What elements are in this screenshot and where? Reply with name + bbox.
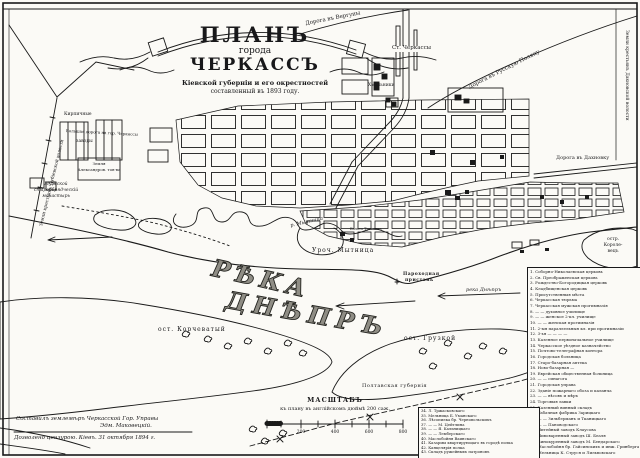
label-gruzkoy: ост. Грузкой xyxy=(404,336,456,342)
label-pristan-1: Пароходная xyxy=(403,273,440,278)
label-monastery-2: старообрядческій xyxy=(18,189,94,194)
scale-bar xyxy=(267,420,403,428)
map-subtitle-1: Кіевской губерніи и его окрестностей xyxy=(155,80,355,87)
scale-tick: 400 xyxy=(322,430,348,435)
map-title: ПЛАНЪ xyxy=(190,24,320,45)
label-pristan-2: пристань xyxy=(405,279,434,284)
map-title-city: ЧЕРКАССЪ xyxy=(180,57,330,74)
label-korolevets-1: остр. xyxy=(598,238,628,243)
map-page: ПЛАНЪ города ЧЕРКАССЪ Кіевской губерніи … xyxy=(0,0,640,458)
label-uroch-mytnitsa: Уроч. Мытница xyxy=(312,248,374,254)
label-monastery-3: монастырь xyxy=(28,195,84,200)
label-monastery-1: Мужской xyxy=(28,183,84,188)
legend-item: 33. Мельница К. Струся и Лильвовскаго xyxy=(530,450,639,456)
label-korolevets-3: вецъ xyxy=(600,250,626,255)
legend-continued: 34. Л. Тржасковскаго35. Мельница Б. Уман… xyxy=(418,407,540,458)
credits-line-1: Составилъ землемѣръ Черкасской Гор. Упра… xyxy=(16,417,158,423)
scale-tick-labels: 200400600800 xyxy=(288,430,416,435)
map-subtitle-2: составленный въ 1893 году. xyxy=(175,89,335,95)
label-boloto: Болото Тросянка xyxy=(350,228,382,232)
label-reka-dnepr-small: река Днѣпръ xyxy=(466,288,501,293)
label-station: Ст. Черкассы xyxy=(392,46,431,52)
label-alexandrov-1: Земля xyxy=(80,162,118,166)
city-grid xyxy=(148,99,624,247)
label-road-dahnovka: Дорога въ Дахновку xyxy=(556,156,609,161)
label-zavody: заводы xyxy=(76,140,93,145)
scale-title: МАСШТАБЪ xyxy=(300,397,370,404)
scale-tick: 200 xyxy=(288,430,314,435)
label-alexandrov-2: Александров. тов-ва xyxy=(74,168,124,172)
label-land-dahnovka: Земли крестьянъ Дахновской волости xyxy=(624,30,629,121)
label-poltava: Полтавская губернія xyxy=(362,384,427,389)
scale-subtitle: къ плану въ англійскомъ дюймѣ 200 саж. xyxy=(255,407,415,412)
label-korchevaty: ост. Корчеватый xyxy=(158,327,226,333)
scale-tick: 800 xyxy=(390,430,416,435)
censor-line: Дозволено цензурою. Кіевъ. 31 октября 18… xyxy=(14,436,155,442)
label-hmelniki: Хмѣльники xyxy=(368,84,395,89)
credits-line-2: Эдм. Маковецкій. xyxy=(100,424,152,430)
scale-tick: 600 xyxy=(356,430,382,435)
label-korolevets-2: Короле- xyxy=(596,244,630,249)
legend-main: 1. Соборно-Николаевская церковь2. Св. Пр… xyxy=(527,267,640,458)
legend-item: 43. Складъ ружейныхъ патроновъ xyxy=(421,450,537,455)
label-kirpichnye: Кирпичные xyxy=(64,113,92,118)
